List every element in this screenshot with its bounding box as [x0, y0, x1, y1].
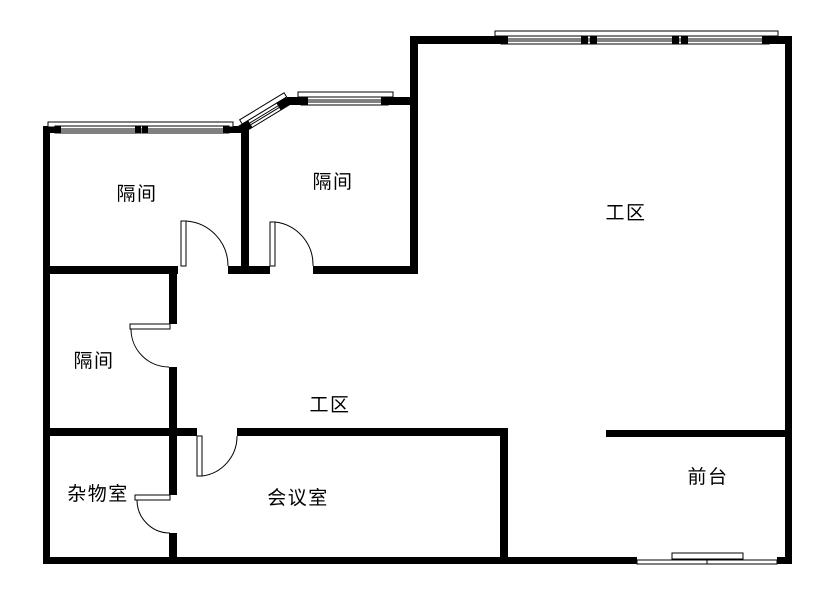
room-label-reception: 前台 [687, 466, 728, 488]
door-leaf [135, 495, 170, 500]
door-leaf [130, 324, 170, 329]
room-label-work-area-center: 工区 [309, 395, 350, 416]
door-swing-arc [275, 222, 313, 266]
door-swing-arc [186, 221, 228, 266]
window-diagonal [236, 93, 291, 133]
door-meeting-room [197, 436, 237, 476]
door-cubicle-top-middle [270, 222, 313, 266]
wall-cubicles-bottom-a [43, 266, 178, 274]
wall-corridor-c [169, 533, 177, 564]
wall-segment-top-a [410, 36, 501, 44]
wall-segment-left [43, 126, 50, 564]
wall-meeting-right [500, 428, 508, 564]
window-work-area [495, 31, 778, 44]
wall-workarea-left [410, 36, 418, 274]
wall-segment-right [785, 36, 792, 564]
window-mullion [501, 36, 508, 44]
room-label-meeting-room: 会议室 [267, 487, 329, 509]
window-mullion [672, 36, 679, 44]
window-top-middle [298, 92, 393, 105]
wall-segment-bottom [43, 557, 637, 564]
window-mullion [590, 36, 597, 44]
room-label-cubicle-mid-left: 隔间 [73, 350, 114, 372]
window-sill [495, 31, 778, 36]
door-storage-room [135, 495, 170, 533]
window-mullion [135, 126, 141, 133]
window-sill [298, 92, 393, 97]
door-leaf [197, 436, 202, 476]
window-top-left [48, 122, 233, 133]
floor-plan: 隔间 隔间 工区 隔间 工区 杂物室 会议室 前台 [0, 0, 832, 591]
room-label-storage-room: 杂物室 [67, 483, 129, 505]
wall-corridor-a [169, 266, 177, 324]
wall-cubicles-bottom-c [313, 266, 418, 274]
window-mullion [762, 36, 769, 44]
entrance-sliding-door [637, 553, 777, 564]
window-mullion [55, 126, 61, 133]
door-cubicle-top-left [181, 221, 228, 266]
window-mullion [142, 126, 148, 133]
door-leaf [270, 222, 275, 266]
door-swing-arc [131, 329, 169, 367]
window-mullion [381, 97, 388, 105]
interior-walls [43, 36, 785, 564]
wall-cubicles-bottom-b [228, 266, 270, 274]
window-glass [301, 97, 388, 105]
window-glass [501, 36, 769, 44]
floor-plan-canvas: 隔间 隔间 工区 隔间 工区 杂物室 会议室 前台 [0, 0, 832, 591]
window-mullion [681, 36, 688, 44]
window-mullion [301, 97, 308, 105]
door-cubicle-mid-left [130, 324, 170, 367]
door-leaf [181, 221, 186, 266]
wall-meeting-top [237, 428, 508, 436]
wall-reception-top [606, 430, 785, 437]
door-swing-arc [202, 436, 237, 476]
wall-storage-top [43, 428, 197, 436]
wall-segment-top-b [769, 36, 792, 44]
room-label-cubicle-top-middle: 隔间 [312, 171, 353, 193]
wall-cubicle-divider [241, 126, 249, 274]
window-mullion [581, 36, 588, 44]
window-mullion [223, 126, 229, 133]
door-swing-arc [137, 500, 170, 533]
room-label-cubicle-top-left: 隔间 [116, 183, 157, 205]
sliding-door-panel [672, 553, 743, 559]
room-label-work-area-main: 工区 [605, 203, 646, 224]
room-labels: 隔间 隔间 工区 隔间 工区 杂物室 会议室 前台 [67, 171, 728, 509]
